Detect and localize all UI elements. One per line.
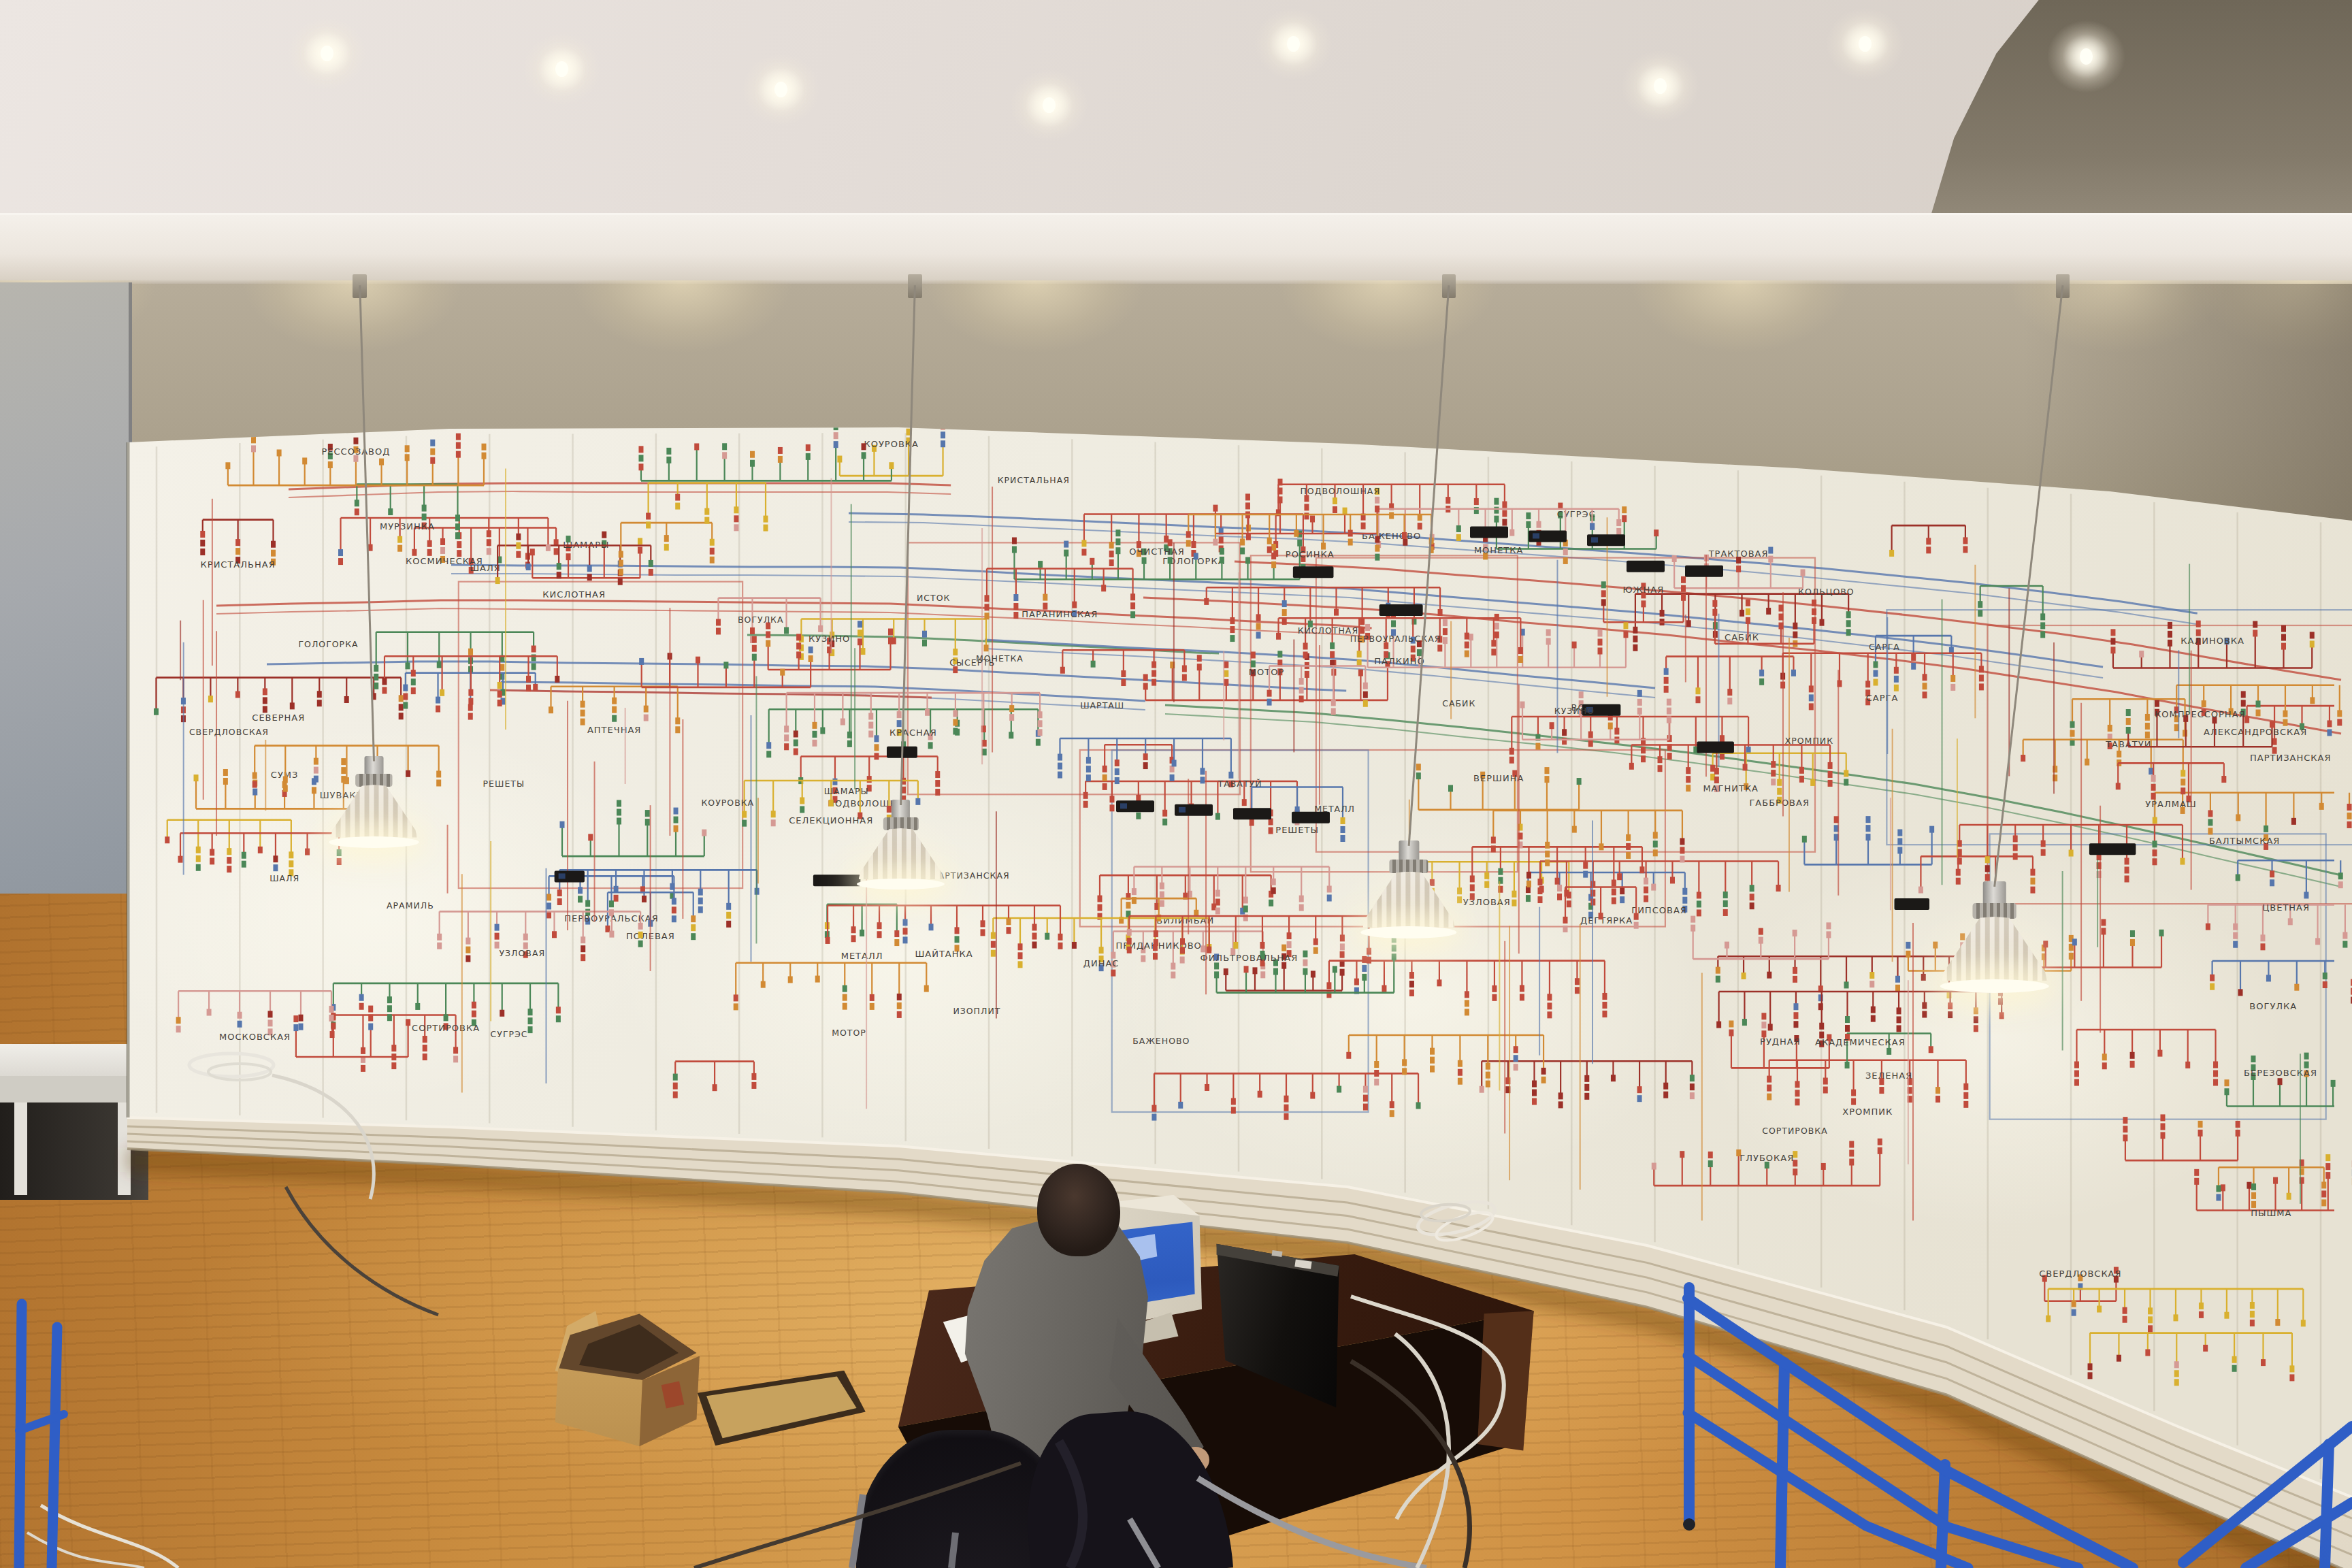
railing-rail <box>1688 1413 1968 1568</box>
railing-post <box>1780 1362 1784 1568</box>
chair-leg <box>1198 1478 1426 1568</box>
railing-foot <box>1683 1518 1695 1531</box>
blue-railing-left <box>19 1304 64 1568</box>
chair-leg <box>1130 1519 1158 1568</box>
railing-post <box>2325 1444 2329 1568</box>
white-cable <box>1351 1296 1504 1519</box>
blue-railing-right <box>1683 1288 2352 1568</box>
cable-coil <box>1420 1203 1470 1223</box>
railing-post <box>19 1304 22 1568</box>
railing-rail <box>1688 1298 2133 1568</box>
control-room-photo: ШАМАРЫВОГУЛКАШАЛЯСАРГАСАБИККУЗИНОКОУРОВК… <box>0 0 2352 1568</box>
white-cable <box>1395 1334 1449 1568</box>
railing-rail <box>2246 1503 2352 1568</box>
chair-leg <box>951 1533 955 1568</box>
white-cable <box>27 1533 144 1568</box>
white-cable <box>272 1075 374 1199</box>
chair-leg <box>852 1494 863 1568</box>
railing-post <box>52 1327 57 1568</box>
foreground-overlay <box>0 0 2352 1568</box>
dark-cable <box>1351 1361 1470 1568</box>
white-cable <box>41 1505 178 1568</box>
dark-cable <box>286 1187 438 1315</box>
cable-coil <box>1433 1207 1497 1246</box>
chair-frame <box>1059 1441 1083 1568</box>
